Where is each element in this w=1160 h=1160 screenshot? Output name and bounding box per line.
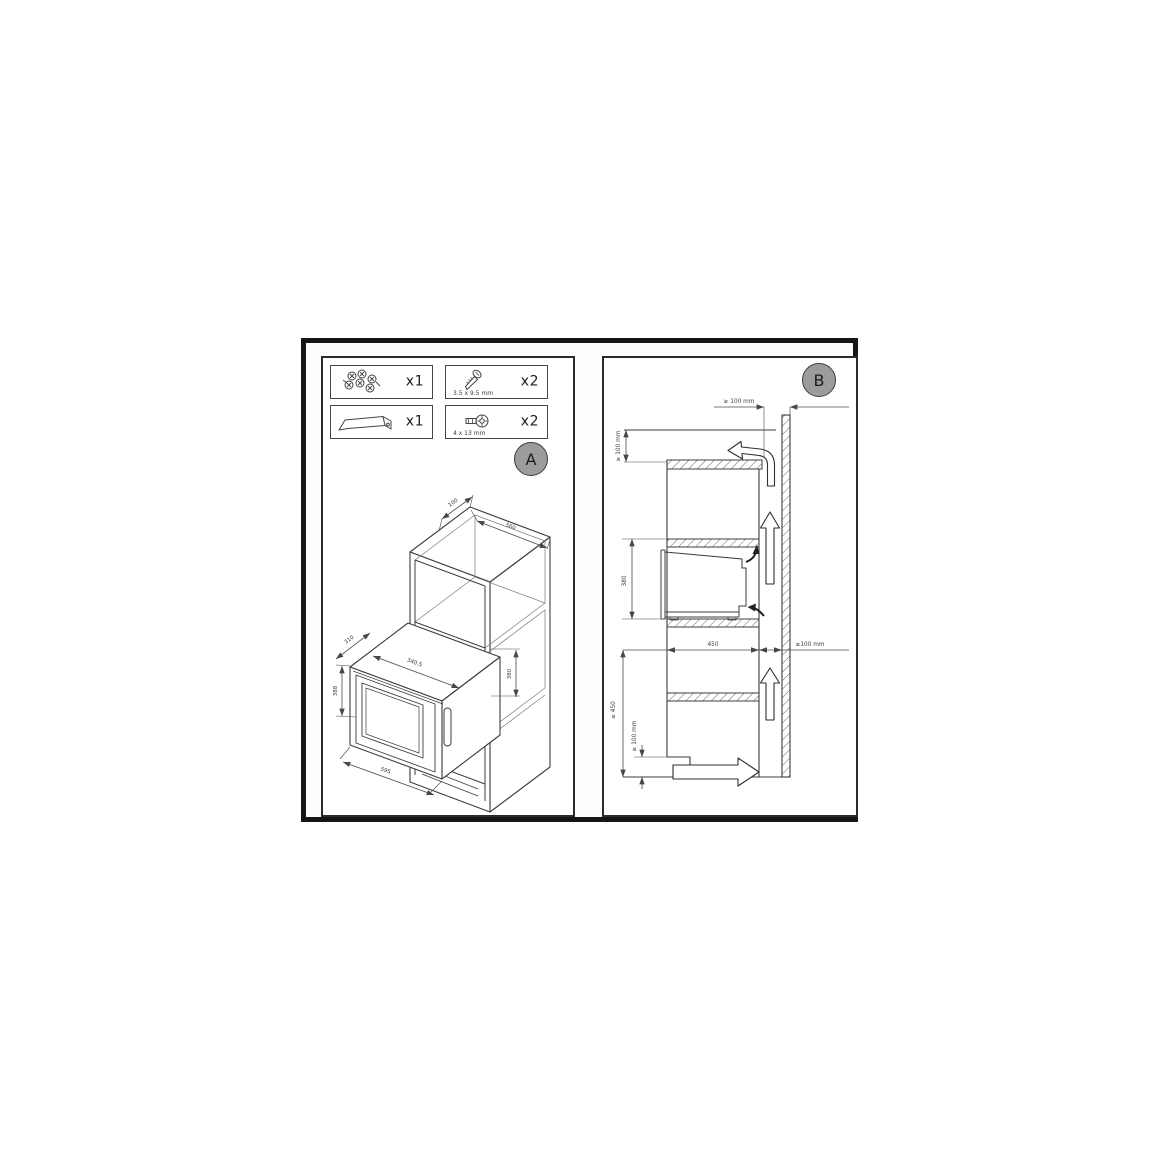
dim-niche-height: 380 [507,668,513,679]
dim-top-rear-gap: ≥ 100 mm [724,399,755,405]
dim-plinth-vent: ≥ 100 mm [632,720,638,751]
microwave-handle [444,708,451,746]
dim-top-clearance: ≥ 100 mm [616,430,622,461]
panel-b-ventilation-section: B [602,356,858,817]
dim-unit-width: 595 [379,766,391,775]
airflow-arrow-mid-up [761,512,780,584]
cabinet-top-board [667,460,762,469]
dim-niche-height: 380 [622,575,628,586]
dim-rear-gap: ≥100 mm [795,642,824,648]
dim-base-height: ≥ 450 [611,701,617,719]
niche-top-board [667,539,759,547]
dim-unit-depth: 310 [343,634,355,645]
airflow-arrow-low-up [761,668,780,720]
scanned-instruction-page: x1 3.5 x 9.5 mm x2 [0,0,1160,1160]
microwave-side-profile [661,550,746,620]
wall-section [782,415,790,777]
ventilation-section-drawing: ≥ 100 mm ≥ 100 mm 380 450 ≥100 mm ≥ 450 … [604,358,856,815]
niche-bottom-board [667,619,759,627]
panel-a-parts-and-cabinet: x1 3.5 x 9.5 mm x2 [321,356,575,817]
cabinet-isometric-drawing: 100 560 310 340.5 388 380 595 [323,358,573,815]
airflow-arrow-plinth-intake [673,758,759,786]
dim-unit-height: 388 [333,685,339,696]
lower-shelf-board [667,693,759,701]
installation-figure: x1 3.5 x 9.5 mm x2 [301,338,858,822]
dim-niche-depth: 450 [707,642,718,648]
